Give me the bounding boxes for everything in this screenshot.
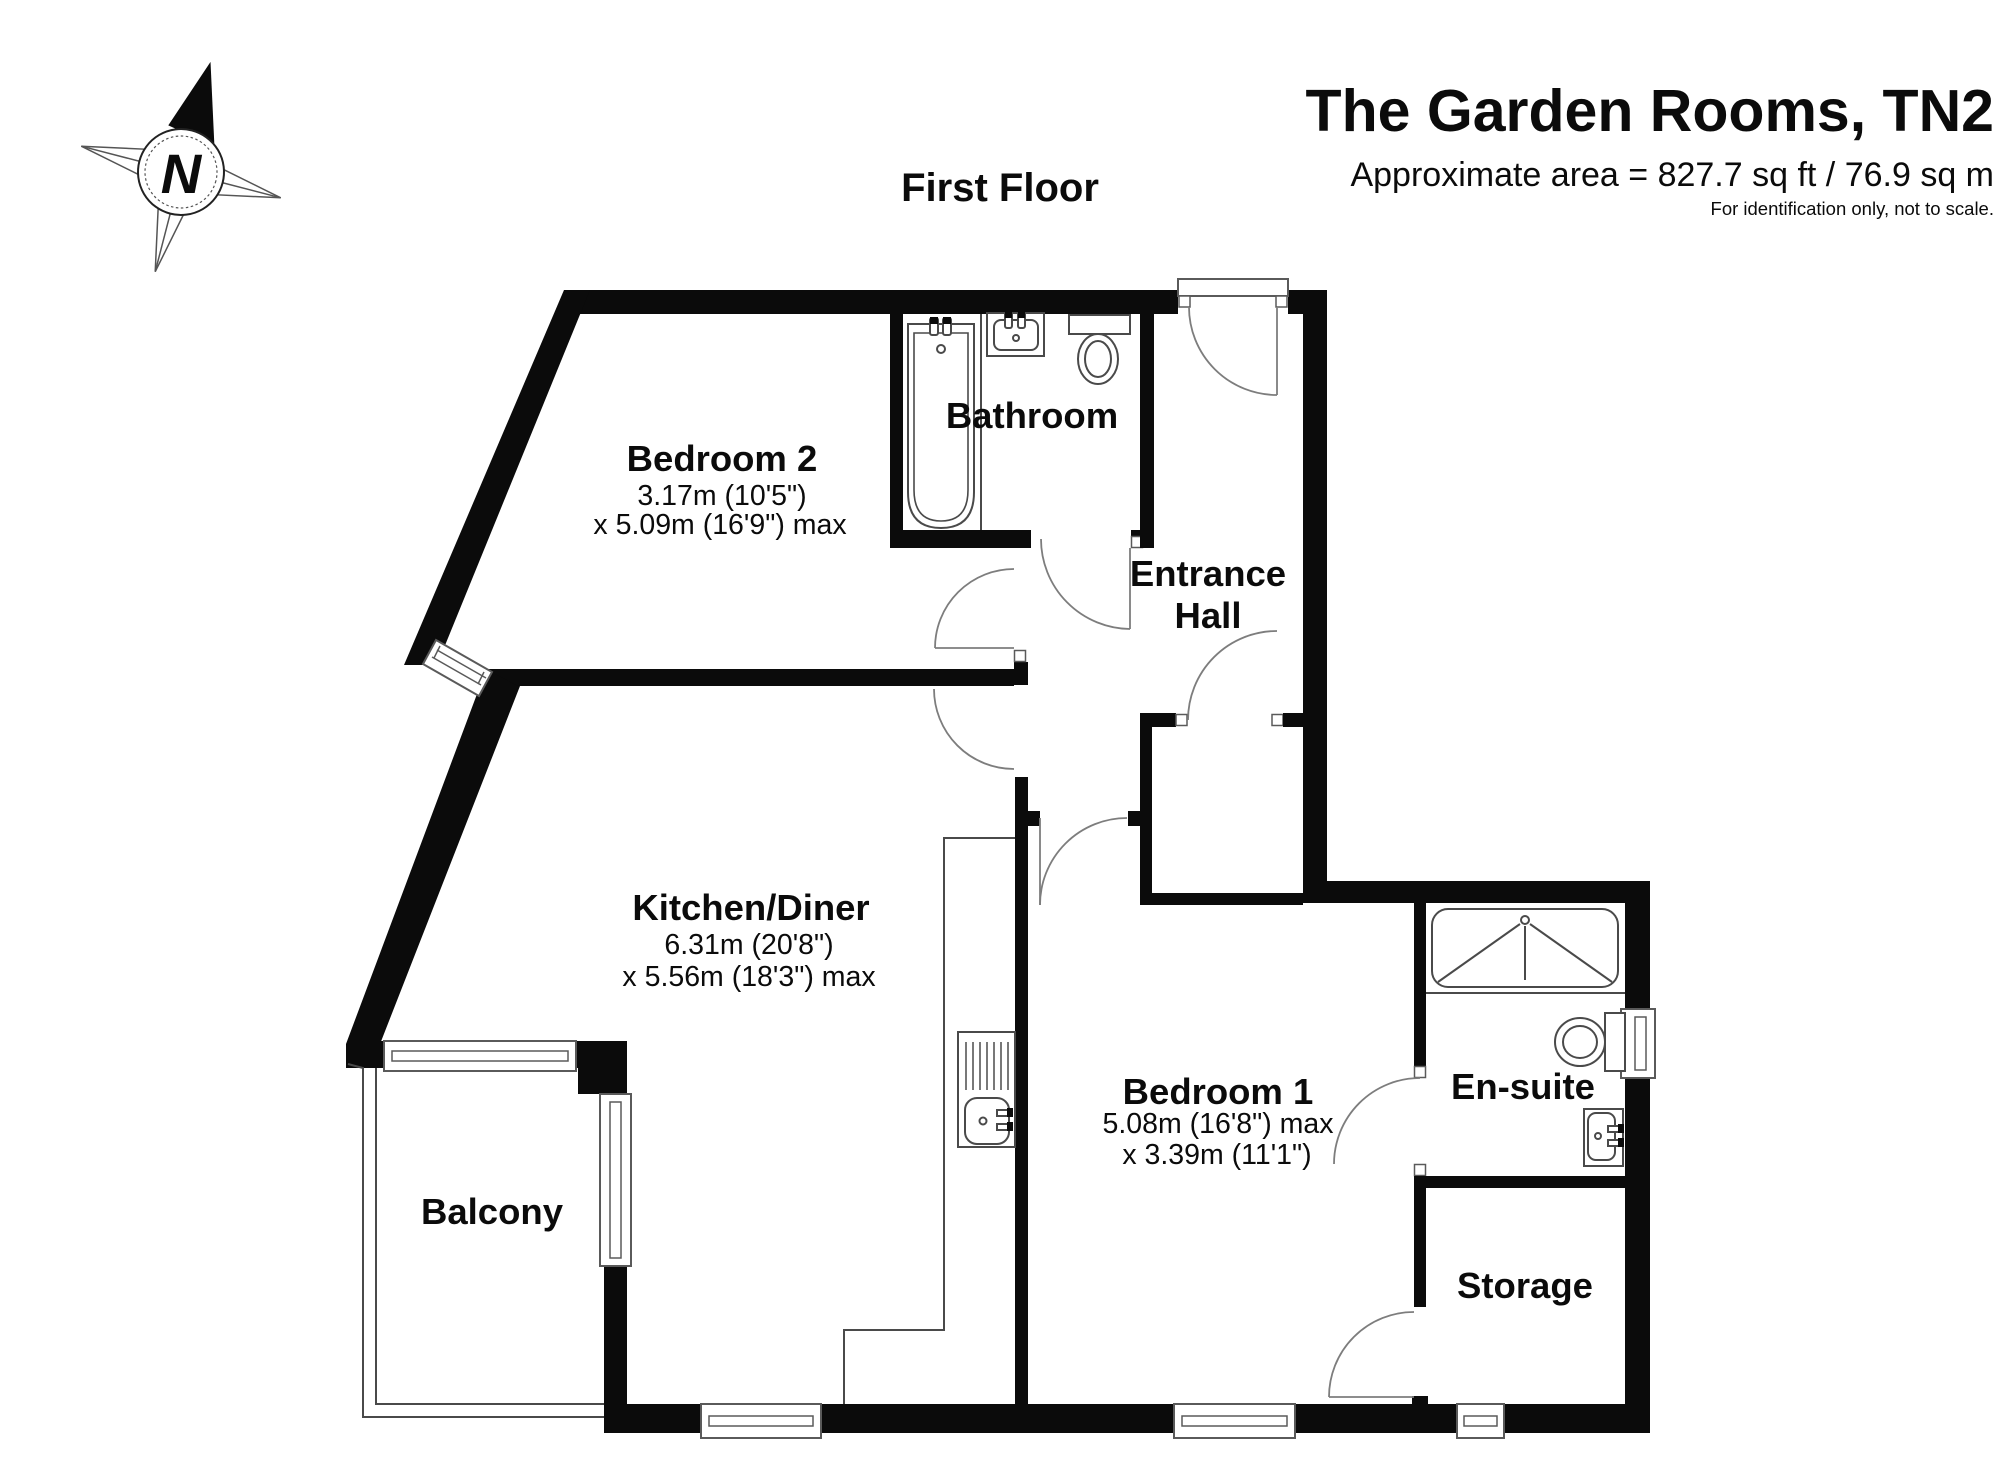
- svg-text:Storage: Storage: [1457, 1265, 1593, 1306]
- svg-text:For identification only, not t: For identification only, not to scale.: [1711, 198, 1994, 219]
- svg-text:The Garden Rooms, TN2: The Garden Rooms, TN2: [1306, 78, 1994, 144]
- svg-text:N: N: [161, 142, 203, 205]
- svg-text:Balcony: Balcony: [421, 1191, 564, 1232]
- svg-text:5.08m (16'8") max: 5.08m (16'8") max: [1103, 1108, 1334, 1140]
- svg-text:Bedroom 2: Bedroom 2: [627, 438, 818, 479]
- svg-text:x 3.39m (11'1"): x 3.39m (11'1"): [1122, 1139, 1311, 1171]
- svg-text:Approximate area = 827.7 sq ft: Approximate area = 827.7 sq ft / 76.9 sq…: [1350, 156, 1994, 194]
- svg-text:3.17m (10'5"): 3.17m (10'5"): [637, 480, 806, 512]
- svg-text:First Floor: First Floor: [901, 166, 1099, 210]
- svg-text:6.31m (20'8"): 6.31m (20'8"): [664, 929, 833, 961]
- svg-text:x 5.56m (18'3") max: x 5.56m (18'3") max: [622, 961, 875, 993]
- svg-text:x 5.09m (16'9") max: x 5.09m (16'9") max: [593, 509, 846, 541]
- svg-text:Entrance: Entrance: [1130, 553, 1286, 594]
- svg-text:Bathroom: Bathroom: [946, 395, 1118, 436]
- svg-text:Kitchen/Diner: Kitchen/Diner: [632, 887, 869, 928]
- svg-text:Bedroom 1: Bedroom 1: [1123, 1071, 1314, 1112]
- svg-text:En-suite: En-suite: [1451, 1066, 1595, 1107]
- svg-text:Hall: Hall: [1175, 595, 1242, 636]
